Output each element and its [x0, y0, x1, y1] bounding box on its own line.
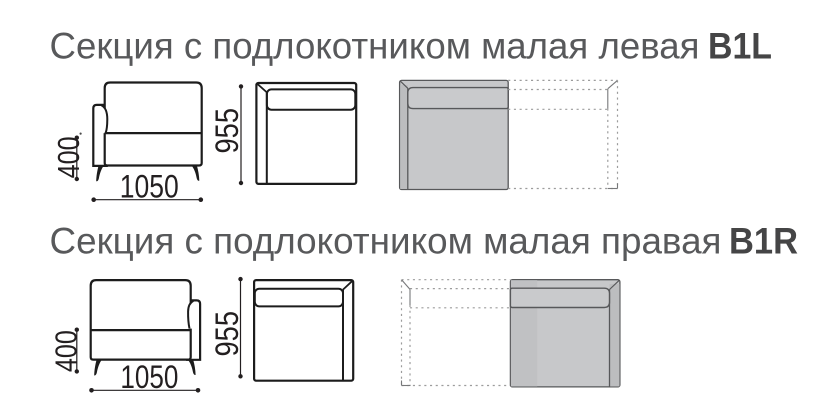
svg-text:B1L: B1L: [708, 26, 772, 67]
svg-text:Секция с подлокотником малая: Секция с подлокотником малая левая: [50, 26, 700, 67]
svg-text:Секция с подлокотником малая: Секция с подлокотником малая правая: [50, 220, 722, 261]
svg-text:955: 955: [209, 311, 245, 357]
svg-text:B1R: B1R: [729, 220, 798, 261]
svg-text:1050: 1050: [120, 359, 178, 395]
svg-text:400: 400: [50, 330, 84, 372]
svg-text:400: 400: [52, 136, 86, 178]
svg-text:955: 955: [209, 108, 245, 154]
svg-text:1050: 1050: [120, 169, 179, 205]
